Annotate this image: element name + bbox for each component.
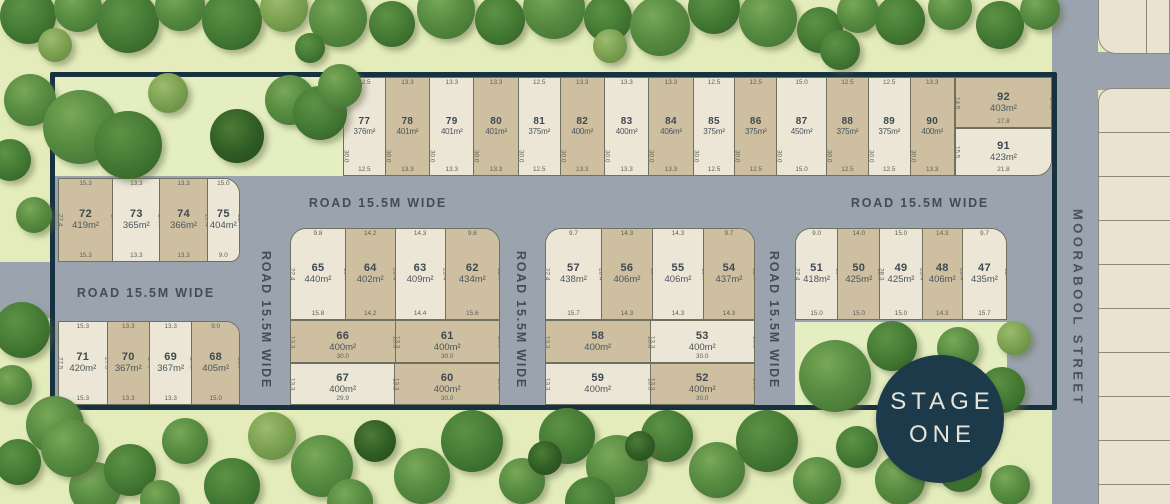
tree-icon (394, 448, 450, 504)
tree-icon (0, 139, 31, 181)
tree-icon (689, 442, 745, 498)
badge-text-stage: STAGE (885, 388, 995, 417)
tree-icon (354, 420, 396, 462)
tree-icon (155, 0, 205, 31)
tree-icon (0, 0, 56, 44)
tree-icon (837, 0, 879, 33)
tree-icon (38, 28, 72, 62)
tree-icon (260, 0, 308, 32)
tree-icon (593, 29, 627, 63)
stage-one-boundary (50, 72, 1057, 410)
tree-icon (586, 435, 648, 497)
tree-icon (97, 0, 159, 53)
tree-icon (369, 1, 415, 47)
road-label-vertical-1: ROAD 15.5M WIDE (259, 251, 273, 389)
tree-icon (204, 458, 260, 504)
tree-icon (41, 419, 99, 477)
tree-icon (54, 0, 102, 32)
tree-icon (295, 33, 325, 63)
tree-icon (625, 431, 655, 461)
tree-icon (441, 410, 503, 472)
estate-plan-map: 77376m²12.512.530.078401m²13.313.330.079… (0, 0, 1170, 504)
tree-icon (736, 410, 798, 472)
tree-icon (4, 74, 56, 126)
road-label-vertical-3: ROAD 15.5M WIDE (767, 251, 781, 389)
tree-icon (475, 0, 525, 45)
tree-icon (565, 477, 615, 504)
road-label-north-west: ROAD 15.5M WIDE (309, 196, 447, 210)
tree-icon (739, 0, 797, 47)
road-label-north-east: ROAD 15.5M WIDE (851, 196, 989, 210)
tree-icon (928, 0, 972, 30)
tree-icon (793, 457, 841, 504)
tree-icon (327, 479, 373, 504)
tree-icon (0, 365, 32, 405)
tree-icon (630, 0, 690, 56)
tree-icon (0, 439, 41, 485)
moorabool-street-label: MOORABOOL STREET (1071, 209, 1086, 407)
tree-icon (990, 465, 1030, 504)
tree-icon (69, 462, 121, 504)
street-east-lot-column (1098, 88, 1170, 504)
stage-one-badge: STAGE ONE (876, 355, 1004, 483)
side-street-east (1052, 52, 1170, 90)
road-label-west: ROAD 15.5M WIDE (77, 286, 215, 300)
tree-icon (688, 0, 740, 34)
tree-icon (309, 0, 367, 47)
tree-icon (202, 0, 262, 50)
tree-icon (539, 408, 595, 464)
tree-icon (875, 0, 925, 45)
badge-text-one: ONE (904, 421, 976, 450)
tree-icon (976, 1, 1024, 49)
tree-icon (641, 410, 693, 462)
tree-icon (820, 30, 860, 70)
tree-icon (836, 426, 878, 468)
tree-icon (104, 444, 156, 496)
tree-icon (499, 458, 545, 504)
tree-icon (528, 441, 562, 475)
tree-icon (162, 418, 208, 464)
street-east-lot-block (1098, 0, 1170, 54)
tree-icon (291, 435, 353, 497)
tree-icon (797, 7, 843, 53)
tree-icon (16, 197, 52, 233)
tree-icon (140, 480, 180, 504)
tree-icon (523, 0, 585, 39)
tree-icon (584, 0, 632, 42)
tree-icon (248, 412, 296, 460)
tree-icon (417, 0, 475, 39)
road-label-vertical-2: ROAD 15.5M WIDE (514, 251, 528, 389)
